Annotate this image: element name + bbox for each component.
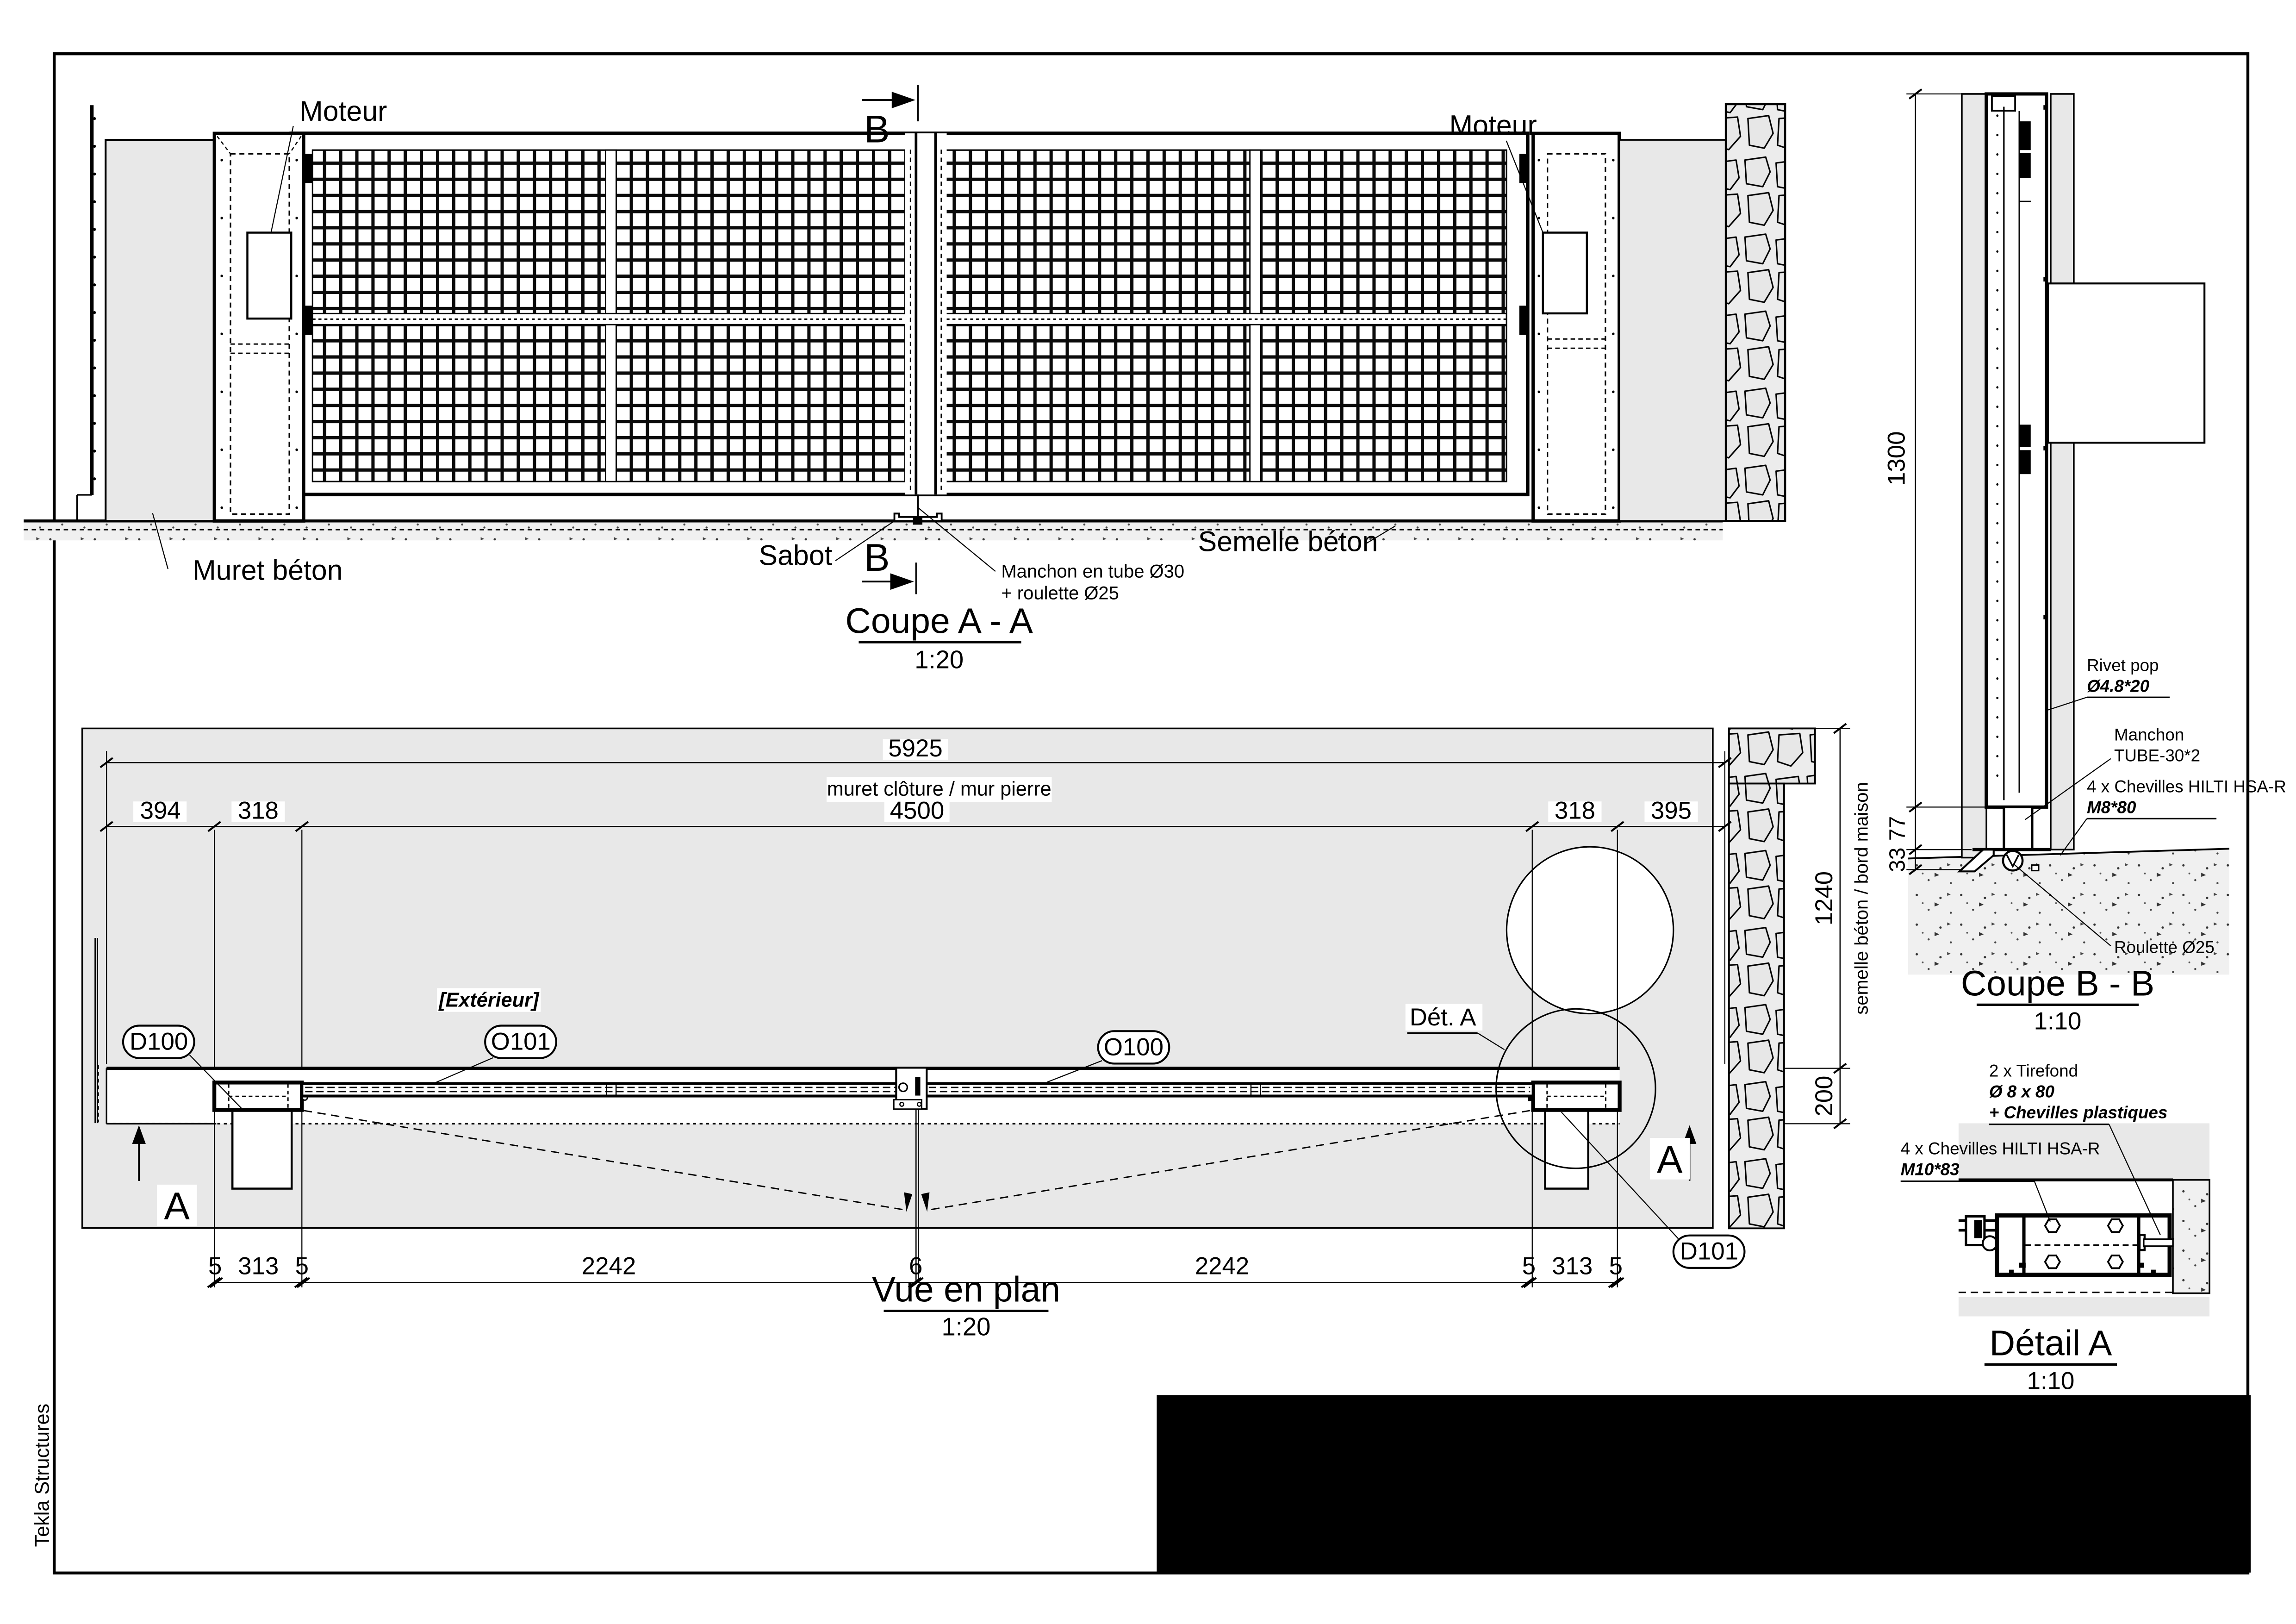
dim-318-right: 318 <box>1555 797 1595 824</box>
dim-2242-left: 2242 <box>582 1253 636 1280</box>
label-tirefond: 2 x Tirefond <box>1989 1062 2078 1081</box>
motor-box-left <box>248 233 292 319</box>
coupe-aa-title: Coupe A - A <box>845 601 1033 641</box>
det-a-base-plate <box>1997 1215 2173 1275</box>
center-stiles <box>905 133 946 494</box>
label-tirefond-chevilles: + Chevilles plastiques <box>1989 1103 2168 1122</box>
detail-a-scale: 1:10 <box>2027 1368 2075 1395</box>
dim-5-c: 5 <box>1522 1253 1536 1280</box>
tirefond-bolt <box>2144 1239 2173 1246</box>
bb-manchon-tube <box>2004 807 2032 849</box>
dim-4500: 4500 <box>890 797 944 824</box>
b-letter-top: B <box>864 107 890 150</box>
label-moteur-left: Moteur <box>299 95 387 127</box>
dim-1240: 1240 <box>1811 871 1838 925</box>
plan-stone-upper <box>1729 728 1815 783</box>
a-letter-right: A <box>1657 1138 1683 1181</box>
bb-wall-right <box>2051 94 2074 849</box>
a-letter-left: A <box>164 1185 190 1228</box>
dim-5-d: 5 <box>1609 1253 1623 1280</box>
coupe-bb-scale: 1:10 <box>2034 1007 2082 1035</box>
label-moteur-right: Moteur <box>1450 109 1537 141</box>
detail-circle-upper <box>1506 847 1673 1013</box>
bb-motor-box <box>2048 283 2204 443</box>
label-det-chevilles-spec: M10*83 <box>1901 1160 1960 1179</box>
tekla-watermark: Tekla Structures <box>31 1404 54 1547</box>
label-bb-manchon-spec: TUBE-30*2 <box>2114 746 2200 765</box>
plan-scale: 1:20 <box>942 1313 991 1341</box>
dim-394: 394 <box>140 797 181 824</box>
dim-77: 77 <box>1885 816 1910 841</box>
label-rivet-spec: Ø4.8*20 <box>2087 676 2150 695</box>
label-tirefond-spec: Ø 8 x 80 <box>1989 1082 2055 1101</box>
det-a-gray-bottom <box>1959 1297 2209 1317</box>
label-det-a: Dét. A <box>1410 1004 1477 1031</box>
dim-2242-right: 2242 <box>1195 1253 1249 1280</box>
plan-title: Vue en plan <box>872 1269 1060 1309</box>
label-rivet-pop: Rivet pop <box>2087 656 2159 675</box>
detail-a-title: Détail A <box>1990 1324 2112 1363</box>
label-bb-chevilles-spec: M8*80 <box>2087 798 2136 817</box>
coupe-aa-scale: 1:20 <box>915 645 964 674</box>
right-wall <box>1619 140 1726 521</box>
bubble-o101: O101 <box>491 1028 551 1055</box>
dim-395: 395 <box>1651 797 1692 824</box>
left-post <box>214 133 304 521</box>
dim-5-b: 5 <box>295 1253 309 1280</box>
label-muret-beton: Muret béton <box>193 554 342 586</box>
bubble-d100: D100 <box>130 1028 188 1055</box>
right-post <box>1533 133 1619 521</box>
plan-stone-lower <box>1729 784 1784 1229</box>
b-letter-bottom: B <box>864 536 890 579</box>
dim-318-left: 318 <box>238 797 279 824</box>
label-semelle-bord-maison: semelle béton / bord maison <box>1852 782 1872 1015</box>
label-manchon-1: Manchon en tube Ø30 <box>1001 561 1184 581</box>
bubble-o100: O100 <box>1104 1033 1164 1061</box>
dim-200: 200 <box>1811 1075 1838 1116</box>
bb-wall-left <box>1962 94 1986 858</box>
dim-33: 33 <box>1885 848 1910 872</box>
det-a-concrete <box>2173 1180 2209 1293</box>
label-bb-roulette: Roulette Ø25 <box>2114 937 2215 956</box>
drawing-sheet: Tekla Structures <box>0 0 2296 1624</box>
label-sabot: Sabot <box>759 539 833 571</box>
label-bb-chevilles: 4 x Chevilles HILTI HSA-R <box>2087 777 2286 796</box>
bubble-d101: D101 <box>1680 1238 1738 1265</box>
label-bb-manchon: Manchon <box>2114 725 2184 744</box>
dim-5-a: 5 <box>208 1253 222 1280</box>
dim-313-left: 313 <box>238 1253 279 1280</box>
label-manchon-2: + roulette Ø25 <box>1001 583 1119 603</box>
title-block-redacted <box>1157 1395 2251 1573</box>
coupe-bb-title: Coupe B - B <box>1961 964 2154 1004</box>
label-semelle-beton: Semelle béton <box>1198 525 1378 557</box>
dim-1300: 1300 <box>1883 431 1910 486</box>
stone-wall <box>1726 104 1785 521</box>
muret-beton <box>106 140 214 521</box>
label-det-chevilles: 4 x Chevilles HILTI HSA-R <box>1901 1139 2100 1158</box>
motor-box-right <box>1543 233 1587 313</box>
dim-5925: 5925 <box>888 735 942 762</box>
dim-313-right: 313 <box>1552 1253 1593 1280</box>
label-exterieur: [Extérieur] <box>438 989 540 1012</box>
